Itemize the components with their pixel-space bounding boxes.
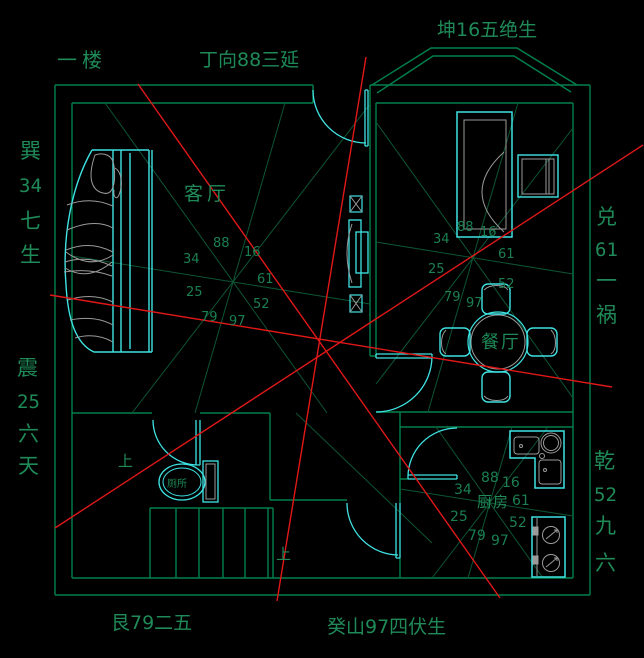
living-room-label: 客厅 — [184, 183, 230, 205]
long-construction-line — [296, 413, 432, 543]
svg-text:34: 34 — [433, 232, 450, 247]
bay-window — [372, 48, 577, 93]
side-unit — [518, 155, 558, 197]
compass-left-lower-label: 震 25 六 天 — [17, 356, 40, 478]
svg-text:天: 天 — [18, 454, 39, 478]
stove — [532, 517, 565, 577]
compass-right-lower-label: 乾 52 九 六 — [594, 449, 617, 575]
svg-text:52: 52 — [509, 515, 527, 531]
svg-text:一: 一 — [596, 269, 617, 293]
stair-hall-door — [347, 503, 400, 558]
svg-text:16: 16 — [480, 225, 497, 240]
svg-text:九: 九 — [595, 514, 616, 538]
svg-text:34: 34 — [19, 175, 42, 197]
compass-top-label: 丁向88三延 — [199, 49, 299, 71]
floorplan-drawing: 一楼 丁向88三延 坤16五绝生 艮79二五 癸山97四伏生 巽 34 七 生 … — [0, 0, 644, 658]
svg-text:61: 61 — [595, 239, 618, 261]
svg-text:25: 25 — [428, 262, 445, 277]
compass-left-upper-label: 巽 34 七 生 — [19, 139, 42, 267]
red-line-3 — [277, 57, 366, 601]
svg-text:25: 25 — [186, 285, 203, 300]
toilet-door — [153, 420, 200, 465]
bed — [64, 150, 152, 352]
svg-text:祸: 祸 — [596, 303, 617, 327]
svg-text:61: 61 — [257, 272, 274, 287]
svg-text:52: 52 — [498, 277, 515, 292]
kitchen-door — [408, 428, 457, 479]
svg-text:乾: 乾 — [594, 449, 615, 473]
svg-text:97: 97 — [491, 533, 509, 549]
svg-text:六: 六 — [595, 551, 616, 575]
svg-text:79: 79 — [468, 528, 486, 544]
svg-text:震: 震 — [17, 356, 38, 380]
tv-unit — [347, 196, 368, 312]
dining-star-lines — [376, 103, 573, 412]
svg-text:97: 97 — [229, 314, 246, 329]
svg-text:52: 52 — [594, 484, 617, 506]
cad-canvas[interactable]: 一楼 丁向88三延 坤16五绝生 艮79二五 癸山97四伏生 巽 34 七 生 … — [0, 0, 644, 658]
svg-text:79: 79 — [201, 310, 218, 325]
compass-bottomleft-label: 艮79二五 — [111, 612, 192, 634]
living-star-numbers: 88 16 34 61 25 52 79 97 — [183, 236, 274, 329]
dining-door — [376, 354, 432, 412]
compass-right-upper-label: 兑 61 一 祸 — [595, 205, 618, 327]
floor-title: 一楼 — [57, 48, 107, 72]
stairs-up-label-1: 上 — [118, 452, 133, 470]
doors — [153, 90, 457, 558]
svg-text:61: 61 — [512, 493, 530, 509]
svg-text:34: 34 — [454, 482, 472, 498]
svg-text:88: 88 — [481, 470, 499, 486]
svg-text:61: 61 — [498, 247, 515, 262]
svg-text:97: 97 — [466, 296, 483, 311]
svg-text:88: 88 — [213, 236, 230, 251]
stairs-up-label-2: 上 — [276, 545, 291, 563]
svg-text:88: 88 — [457, 220, 474, 235]
svg-text:25: 25 — [17, 391, 40, 413]
svg-text:六: 六 — [18, 422, 39, 446]
svg-text:34: 34 — [183, 252, 200, 267]
compass-bottom-label: 癸山97四伏生 — [327, 616, 446, 638]
svg-text:25: 25 — [450, 509, 468, 525]
svg-text:16: 16 — [244, 245, 261, 260]
svg-text:52: 52 — [253, 297, 270, 312]
svg-text:生: 生 — [20, 243, 41, 267]
compass-topright-label: 坤16五绝生 — [437, 19, 537, 41]
svg-text:七: 七 — [20, 209, 41, 233]
stairs — [150, 508, 273, 578]
svg-text:兑: 兑 — [596, 205, 617, 229]
svg-text:79: 79 — [444, 290, 461, 305]
svg-text:16: 16 — [502, 475, 520, 491]
kitchen-label: 厨房 — [477, 493, 509, 511]
svg-text:巽: 巽 — [20, 139, 41, 163]
dining-room-label: 餐厅 — [481, 332, 521, 353]
toilet-label: 厕所 — [167, 478, 187, 490]
